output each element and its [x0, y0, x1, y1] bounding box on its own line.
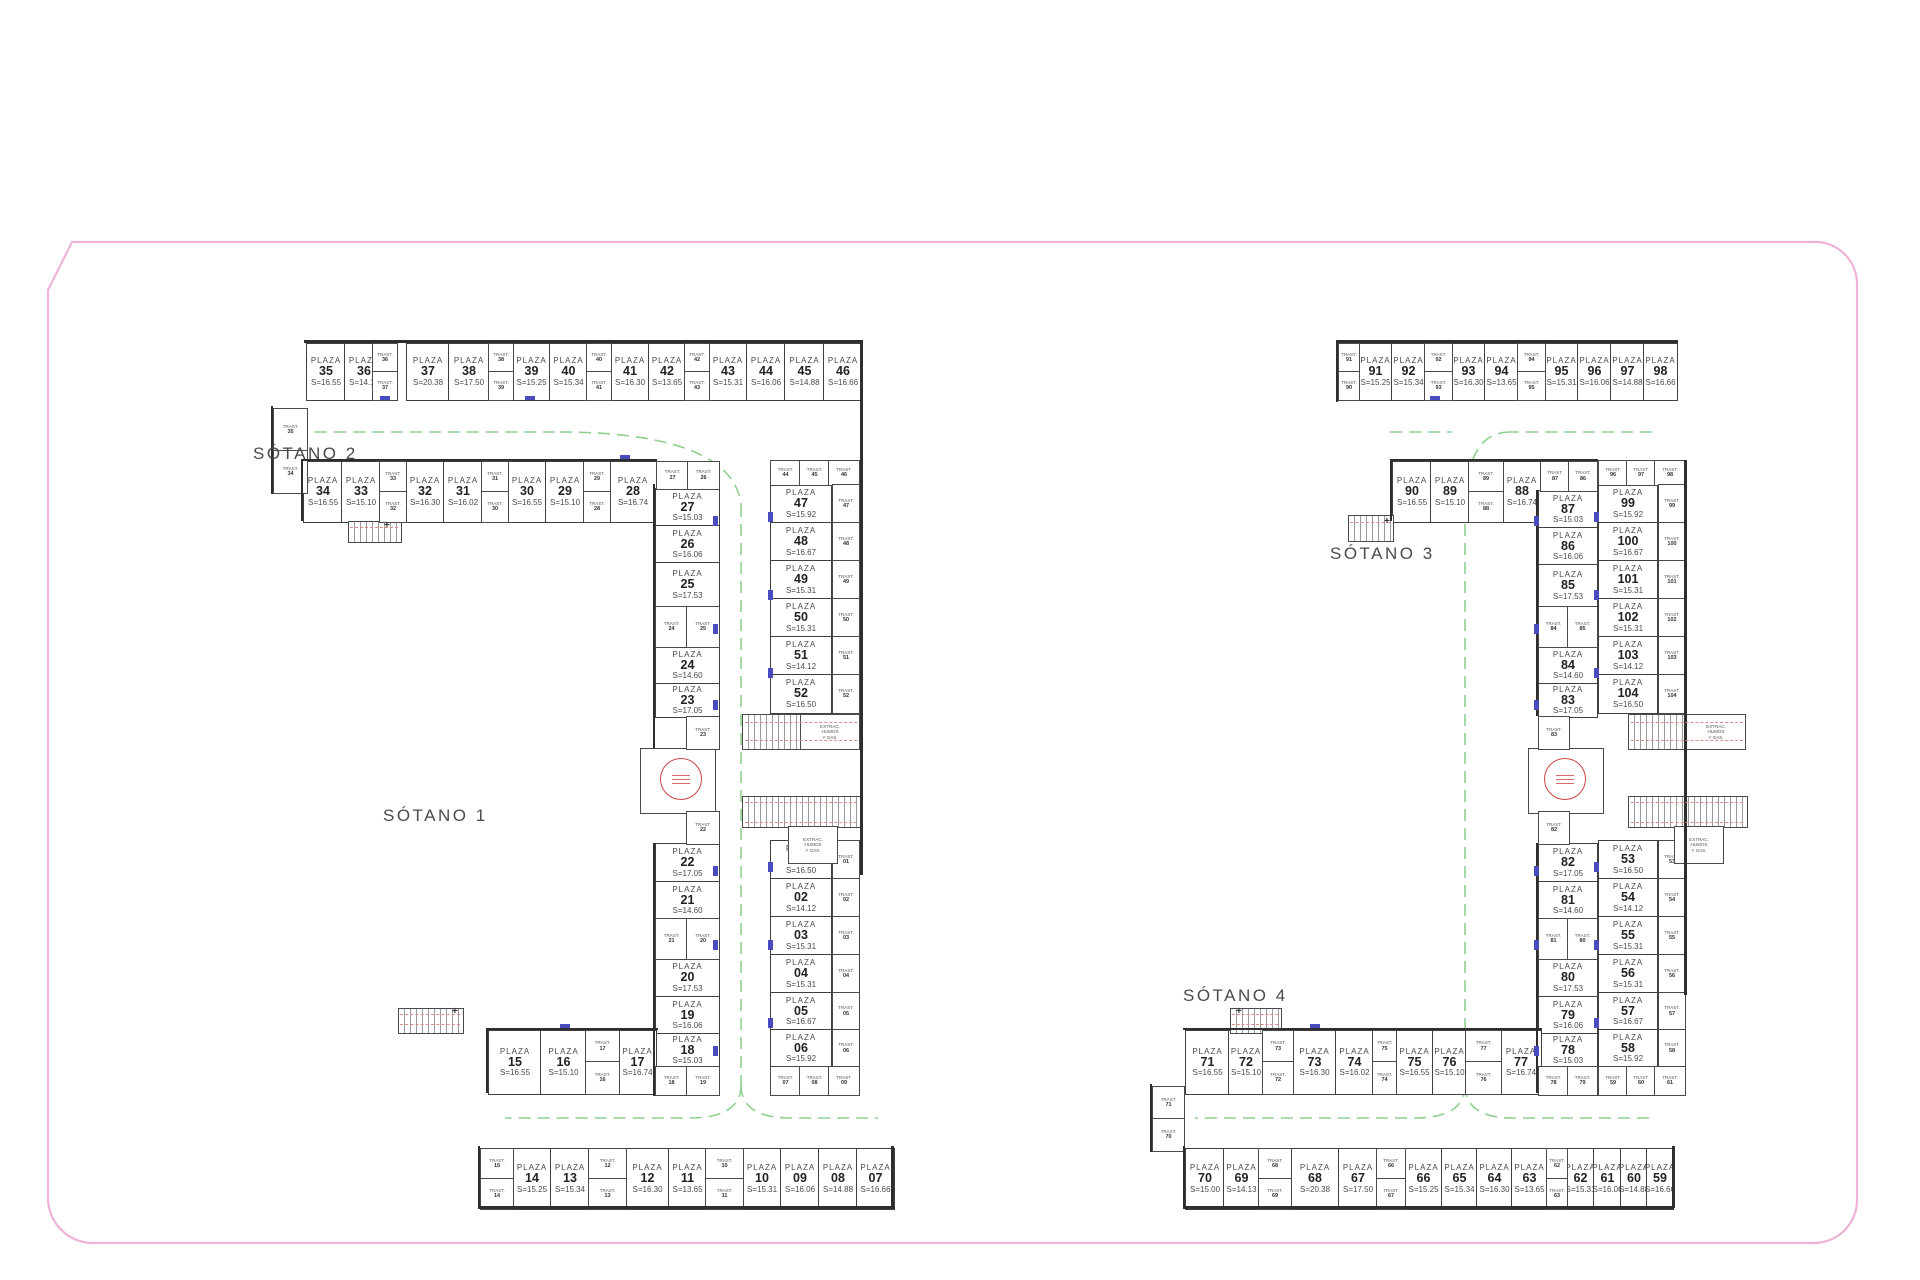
- plaza-area: S=16.55: [500, 1069, 530, 1077]
- trast-number: 82: [1551, 827, 1557, 833]
- door-marker: [768, 590, 773, 600]
- trast-number: 76: [1480, 1077, 1486, 1083]
- plaza-area: S=15.92: [1613, 511, 1643, 519]
- storage-room-03: TRAST.03: [832, 916, 860, 956]
- parking-space-90: PLAZA90S=16.55: [1392, 461, 1432, 523]
- storage-room-98: TRAST.98: [1654, 460, 1686, 486]
- trast-number: 80: [1579, 938, 1585, 944]
- stairs-hatch: [742, 796, 862, 828]
- trast-number: 62: [1554, 1163, 1560, 1169]
- door-marker: [525, 396, 535, 400]
- plaza-number: 96: [1588, 365, 1602, 378]
- plaza-area: S=15.10: [346, 499, 376, 507]
- trast-number: 100: [1667, 541, 1676, 547]
- storage-room-04: TRAST.04: [832, 954, 860, 994]
- door-marker: [1534, 700, 1539, 710]
- plaza-area: S=15.25: [1408, 1186, 1438, 1194]
- plaza-area: S=15.10: [550, 499, 580, 507]
- parking-space-96: PLAZA96S=16.06: [1577, 343, 1612, 401]
- wall-segment: [486, 1028, 658, 1030]
- parking-space-07: PLAZA07S=16.66: [856, 1148, 895, 1210]
- storage-room-96: TRAST.96: [1598, 460, 1628, 486]
- door-marker: [1534, 624, 1539, 634]
- plaza-number: 14: [525, 1172, 539, 1185]
- plaza-area: S=20.38: [413, 379, 443, 387]
- plaza-area: S=16.55: [512, 499, 542, 507]
- storage-room-47: TRAST.47: [832, 484, 860, 524]
- storage-room-46: TRAST.46: [828, 460, 860, 486]
- trast-number: 46: [841, 472, 847, 478]
- door-marker: [768, 862, 773, 872]
- door-marker: [1594, 862, 1599, 872]
- plaza-area: S=16.30: [615, 379, 645, 387]
- parking-space-99: PLAZA99S=15.92: [1598, 484, 1658, 524]
- parking-space-14: PLAZA14S=15.25: [512, 1148, 552, 1210]
- plaza-number: 89: [1443, 485, 1457, 498]
- plaza-number: 93: [1462, 365, 1476, 378]
- parking-space-59: PLAZA59S=16.66: [1646, 1148, 1674, 1210]
- storage-room-72: TRAST.72: [1262, 1061, 1294, 1095]
- wall-segment: [478, 1146, 480, 1208]
- parking-space-91: PLAZA91S=15.25: [1358, 343, 1393, 401]
- plaza-number: 104: [1618, 687, 1639, 700]
- door-marker: [560, 1024, 570, 1028]
- trast-number: 61: [1667, 1080, 1673, 1086]
- door-marker: [713, 1046, 718, 1056]
- door-marker: [1594, 590, 1599, 600]
- plaza-area: S=15.25: [1360, 379, 1390, 387]
- storage-room-26: TRAST.26: [687, 461, 720, 490]
- parking-space-35: PLAZA35S=16.55: [306, 343, 346, 401]
- trast-number: 37: [382, 385, 388, 391]
- plaza-area: S=15.03: [1553, 1057, 1583, 1065]
- storage-room-81: TRAST.81: [1538, 918, 1569, 960]
- plaza-area: S=17.05: [672, 707, 702, 715]
- plaza-area: S=15.31: [1613, 943, 1643, 951]
- plaza-area: S=16.55: [308, 499, 338, 507]
- parking-space-73: PLAZA73S=16.30: [1292, 1030, 1337, 1095]
- plaza-area: S=20.38: [1300, 1186, 1330, 1194]
- smoke-extraction-box: EXTRAC.HUMOSY GAS.: [1674, 826, 1724, 864]
- trast-number: 38: [498, 357, 504, 363]
- plaza-number: 36: [357, 365, 371, 378]
- parking-space-89: PLAZA89S=15.10: [1430, 461, 1470, 523]
- parking-space-40: PLAZA40S=15.34: [549, 343, 588, 401]
- plaza-number: 49: [794, 573, 808, 586]
- door-marker: [1534, 1046, 1539, 1056]
- wall-segment: [304, 340, 863, 343]
- parking-space-62: PLAZA62S=15.31: [1566, 1148, 1595, 1210]
- trast-number: 71: [1165, 1102, 1171, 1108]
- parking-space-61: PLAZA61S=16.06: [1593, 1148, 1622, 1210]
- door-marker: [768, 940, 773, 950]
- plaza-area: S=16.02: [448, 499, 478, 507]
- plaza-area: S=16.02: [1339, 1069, 1369, 1077]
- parking-space-86: PLAZA86S=16.06: [1538, 527, 1598, 566]
- storage-room-84: TRAST.84: [1538, 606, 1569, 648]
- parking-space-32: PLAZA32S=16.30: [405, 461, 445, 523]
- parking-space-41: PLAZA41S=16.30: [610, 343, 650, 401]
- parking-space-27: PLAZA27S=15.03: [655, 488, 720, 527]
- parking-space-71: PLAZA71S=16.55: [1185, 1030, 1230, 1095]
- trast-number: 41: [596, 385, 602, 391]
- plaza-number: 43: [721, 365, 735, 378]
- plaza-area: S=16.06: [751, 379, 781, 387]
- storage-room-89: TRAST.89: [1468, 461, 1504, 493]
- trast-number: 70: [1165, 1134, 1171, 1140]
- plaza-area: S=17.53: [1553, 985, 1583, 993]
- plaza-number: 80: [1561, 971, 1575, 984]
- trast-number: 32: [390, 506, 396, 512]
- storage-room-91: TRAST.91: [1338, 343, 1360, 373]
- stairs-hatch: [348, 521, 402, 543]
- parking-space-63: PLAZA63S=13.65: [1511, 1148, 1548, 1210]
- storage-room-68: TRAST.68: [1258, 1148, 1292, 1180]
- stair-guide-dashes: [745, 740, 857, 741]
- parking-space-45: PLAZA45S=14.88: [784, 343, 825, 401]
- plaza-number: 103: [1618, 649, 1639, 662]
- storage-room-80: TRAST.80: [1567, 918, 1598, 960]
- parking-space-09: PLAZA09S=16.06: [780, 1148, 820, 1210]
- stairs-hatch: [742, 714, 802, 750]
- storage-room-15: TRAST.15: [480, 1148, 514, 1180]
- storage-room-02: TRAST.02: [832, 878, 860, 918]
- parking-space-52: PLAZA52S=16.50: [770, 674, 832, 714]
- plaza-area: S=16.66: [828, 379, 858, 387]
- parking-space-104: PLAZA104S=16.50: [1598, 674, 1658, 714]
- plaza-number: 44: [759, 365, 773, 378]
- storage-room-29: TRAST.29: [583, 461, 611, 493]
- trast-number: 04: [843, 973, 849, 979]
- plaza-area: S=15.92: [1613, 1055, 1643, 1063]
- plaza-area: S=13.65: [672, 1186, 702, 1194]
- floor-label-3: SÓTANO 3: [1330, 544, 1435, 564]
- storage-room-77: TRAST.77: [1465, 1030, 1502, 1063]
- plaza-number: 25: [681, 578, 695, 591]
- plaza-area: S=15.31: [786, 625, 816, 633]
- parking-space-66: PLAZA66S=15.25: [1404, 1148, 1443, 1210]
- plaza-area: S=16.74: [622, 1069, 652, 1077]
- parking-space-60: PLAZA60S=14.88: [1620, 1148, 1648, 1210]
- plaza-number: 42: [660, 365, 674, 378]
- plaza-number: 07: [869, 1172, 883, 1185]
- parking-space-17: PLAZA17S=16.74: [618, 1030, 657, 1095]
- plaza-area: S=14.12: [786, 905, 816, 913]
- parking-space-37: PLAZA37S=20.38: [406, 343, 450, 401]
- parking-space-83: PLAZA83S=17.05: [1538, 683, 1598, 718]
- plaza-number: 09: [793, 1172, 807, 1185]
- trast-number: 17: [599, 1046, 605, 1052]
- stair-guide-dashes: [400, 1014, 460, 1015]
- storage-room-90: TRAST.90: [1338, 371, 1360, 401]
- parking-space-75: PLAZA75S=16.55: [1395, 1030, 1434, 1095]
- trast-number: 87: [1552, 476, 1558, 482]
- trast-number: 95: [1528, 385, 1534, 391]
- parking-space-53: PLAZA53S=16.50: [1598, 840, 1658, 880]
- trast-number: 91: [1346, 357, 1352, 363]
- storage-room-40: TRAST.40: [586, 343, 612, 373]
- parking-space-82: PLAZA82S=17.05: [1538, 843, 1598, 883]
- storage-room-59: TRAST.59: [1598, 1066, 1628, 1096]
- floor-label-2: SÓTANO 1: [383, 806, 488, 826]
- storage-room-24: TRAST.24: [655, 606, 688, 648]
- trast-number: 35: [287, 429, 293, 435]
- door-marker: [380, 396, 390, 400]
- trast-number: 93: [1435, 385, 1441, 391]
- plaza-number: 69: [1235, 1172, 1249, 1185]
- trast-number: 20: [700, 938, 706, 944]
- plaza-area: S=15.31: [713, 379, 743, 387]
- parking-space-54: PLAZA54S=14.12: [1598, 878, 1658, 918]
- trast-number: 58: [1669, 1048, 1675, 1054]
- plaza-area: S=15.31: [786, 981, 816, 989]
- plaza-area: S=15.31: [1613, 981, 1643, 989]
- plaza-number: 55: [1621, 929, 1635, 942]
- plaza-area: S=16.55: [1399, 1069, 1429, 1077]
- plaza-area: S=15.34: [1444, 1186, 1474, 1194]
- trast-number: 84: [1550, 626, 1556, 632]
- trast-number: 89: [1483, 476, 1489, 482]
- stairs-plus-mark: +: [384, 520, 390, 531]
- plaza-area: S=16.74: [1506, 1069, 1536, 1077]
- trast-number: 14: [494, 1193, 500, 1199]
- storage-room-43: TRAST.43: [684, 371, 710, 401]
- plaza-area: S=16.50: [786, 701, 816, 709]
- storage-room-21: TRAST.21: [655, 918, 688, 960]
- trast-number: 47: [843, 503, 849, 509]
- storage-room-50: TRAST.50: [832, 598, 860, 638]
- extraction-line-2: Y GAS.: [805, 848, 820, 853]
- door-marker: [1534, 516, 1539, 526]
- parking-space-48: PLAZA48S=16.67: [770, 522, 832, 562]
- trast-number: 27: [669, 475, 675, 481]
- trast-number: 23: [700, 732, 706, 738]
- storage-room-71: TRAST.71: [1152, 1086, 1185, 1120]
- storage-room-99: TRAST.99: [1658, 484, 1686, 524]
- plaza-number: 47: [794, 497, 808, 510]
- parking-space-23: PLAZA23S=17.05: [655, 683, 720, 718]
- plaza-area: S=15.03: [1553, 516, 1583, 524]
- wall-segment: [891, 1146, 894, 1208]
- wall-segment: [478, 1206, 895, 1209]
- plaza-area: S=16.55: [1192, 1069, 1222, 1077]
- plaza-number: 22: [681, 856, 695, 869]
- plaza-number: 38: [462, 365, 476, 378]
- plaza-area: S=15.31: [786, 587, 816, 595]
- plaza-area: S=14.13: [1226, 1186, 1256, 1194]
- storage-room-42: TRAST.42: [684, 343, 710, 373]
- plaza-area: S=14.88: [823, 1186, 853, 1194]
- plaza-area: S=16.30: [410, 499, 440, 507]
- trast-number: 92: [1435, 357, 1441, 363]
- parking-space-80: PLAZA80S=17.53: [1538, 958, 1598, 998]
- plaza-number: 101: [1618, 573, 1639, 586]
- plaza-number: 56: [1621, 967, 1635, 980]
- parking-space-103: PLAZA103S=14.12: [1598, 636, 1658, 676]
- trast-number: 03: [843, 935, 849, 941]
- trast-number: 11: [722, 1193, 728, 1199]
- trast-number: 33: [390, 476, 396, 482]
- storage-room-92: TRAST.92: [1424, 343, 1453, 373]
- plaza-number: 68: [1308, 1172, 1322, 1185]
- storage-room-09: TRAST.09: [828, 1066, 860, 1096]
- wall-segment: [1390, 459, 1598, 461]
- plaza-area: S=14.12: [1613, 663, 1643, 671]
- trast-number: 101: [1667, 579, 1676, 585]
- parking-space-04: PLAZA04S=15.31: [770, 954, 832, 994]
- plaza-area: S=15.34: [555, 1186, 585, 1194]
- plaza-number: 85: [1561, 579, 1575, 592]
- trast-number: 86: [1580, 476, 1586, 482]
- trast-number: 69: [1272, 1193, 1278, 1199]
- stair-guide-dashes: [745, 722, 857, 723]
- trast-number: 73: [1275, 1046, 1281, 1052]
- plaza-number: 37: [421, 365, 435, 378]
- parking-space-22: PLAZA22S=17.05: [655, 843, 720, 883]
- wall-segment: [1684, 460, 1687, 995]
- trast-number: 24: [668, 626, 674, 632]
- door-marker: [1310, 1024, 1320, 1028]
- plaza-number: 54: [1621, 891, 1635, 904]
- trast-number: 13: [604, 1193, 610, 1199]
- parking-space-67: PLAZA67S=17.50: [1338, 1148, 1378, 1210]
- parking-space-16: PLAZA16S=15.10: [540, 1030, 587, 1095]
- plaza-area: S=15.31: [1613, 587, 1643, 595]
- door-marker: [1430, 396, 1440, 400]
- stair-guide-dashes: [1232, 1024, 1278, 1025]
- parking-space-49: PLAZA49S=15.31: [770, 560, 832, 600]
- parking-space-02: PLAZA02S=14.12: [770, 878, 832, 918]
- plaza-number: 31: [456, 485, 470, 498]
- plaza-number: 90: [1405, 485, 1419, 498]
- trast-number: 103: [1667, 655, 1676, 661]
- plaza-area: S=14.88: [789, 379, 819, 387]
- storage-room-97: TRAST.97: [1626, 460, 1656, 486]
- parking-space-06: PLAZA06S=15.92: [770, 1029, 832, 1068]
- plaza-area: S=16.74: [618, 499, 648, 507]
- storage-room-56: TRAST.56: [1658, 954, 1686, 994]
- parking-space-19: PLAZA19S=16.06: [655, 996, 720, 1035]
- plaza-number: 34: [316, 485, 330, 498]
- parking-space-51: PLAZA51S=14.12: [770, 636, 832, 676]
- plaza-number: 41: [623, 365, 637, 378]
- plaza-area: S=14.88: [1612, 379, 1642, 387]
- parking-space-30: PLAZA30S=16.55: [507, 461, 547, 523]
- parking-space-34: PLAZA34S=16.55: [303, 461, 343, 523]
- plaza-area: S=15.31: [786, 943, 816, 951]
- trast-number: 28: [594, 506, 600, 512]
- trast-number: 88: [1483, 506, 1489, 512]
- trast-number: 30: [492, 506, 498, 512]
- parking-space-56: PLAZA56S=15.31: [1598, 954, 1658, 994]
- wall-segment: [1672, 1146, 1675, 1208]
- plaza-area: S=16.50: [1613, 867, 1643, 875]
- storage-room-16: TRAST.16: [585, 1061, 620, 1095]
- wall-segment: [1336, 340, 1678, 343]
- plaza-number: 102: [1618, 611, 1639, 624]
- trast-number: 81: [1550, 938, 1556, 944]
- plaza-number: 50: [794, 611, 808, 624]
- storage-room-70: TRAST.70: [1152, 1118, 1185, 1152]
- wall-segment: [653, 843, 655, 1096]
- trast-number: 06: [843, 1048, 849, 1054]
- plaza-number: 11: [681, 1172, 694, 1185]
- trast-number: 67: [1388, 1193, 1394, 1199]
- floorplan-canvas: PLAZA35S=16.55PLAZA36S=14.13PLAZA37S=20.…: [0, 0, 1920, 1280]
- wall-segment: [486, 1028, 488, 1093]
- plaza-area: S=13.65: [1514, 1186, 1544, 1194]
- storage-room-44: TRAST.44: [770, 460, 801, 486]
- parking-space-29: PLAZA29S=15.10: [545, 461, 585, 523]
- plaza-area: S=15.25: [517, 1186, 547, 1194]
- parking-space-05: PLAZA05S=16.67: [770, 992, 832, 1031]
- plaza-number: 02: [794, 891, 808, 904]
- storage-room-86: TRAST.86: [1568, 461, 1598, 492]
- storage-room-12: TRAST.12: [588, 1148, 627, 1180]
- storage-room-18: TRAST.18: [655, 1066, 688, 1096]
- plaza-area: S=16.55: [1397, 499, 1427, 507]
- plaza-number: 70: [1198, 1172, 1212, 1185]
- door-marker: [713, 866, 718, 876]
- plaza-number: 62: [1574, 1172, 1588, 1185]
- storage-room-17: TRAST.17: [585, 1030, 620, 1063]
- plaza-area: S=16.50: [786, 867, 816, 875]
- trast-number: 68: [1272, 1163, 1278, 1169]
- trast-number: 94: [1528, 357, 1534, 363]
- plaza-area: S=15.34: [1393, 379, 1423, 387]
- elevator-circle-text-line: [1556, 779, 1574, 780]
- plaza-area: S=16.74: [1507, 499, 1537, 507]
- plaza-number: 94: [1495, 365, 1509, 378]
- parking-space-95: PLAZA95S=15.31: [1544, 343, 1579, 401]
- storage-room-54: TRAST.54: [1658, 878, 1686, 918]
- parking-space-47: PLAZA47S=15.92: [770, 484, 832, 524]
- trast-number: 77: [1480, 1046, 1486, 1052]
- storage-room-33: TRAST.33: [379, 461, 407, 493]
- parking-space-92: PLAZA92S=15.34: [1391, 343, 1426, 401]
- plaza-area: S=15.10: [1231, 1069, 1261, 1077]
- parking-space-28: PLAZA28S=16.74: [609, 461, 657, 523]
- trast-number: 29: [594, 476, 600, 482]
- plaza-number: 59: [1653, 1172, 1667, 1185]
- plaza-area: S=16.50: [1613, 701, 1643, 709]
- storage-room-08: TRAST.08: [799, 1066, 830, 1096]
- storage-room-06: TRAST.06: [832, 1029, 860, 1068]
- door-marker: [713, 516, 718, 526]
- door-marker: [1594, 940, 1599, 950]
- plaza-number: 28: [626, 485, 640, 498]
- trast-number: 63: [1554, 1193, 1560, 1199]
- plaza-area: S=15.92: [786, 511, 816, 519]
- stair-guide-dashes: [350, 527, 398, 528]
- stair-guide-dashes: [1631, 740, 1743, 741]
- parking-space-57: PLAZA57S=16.67: [1598, 992, 1658, 1031]
- plaza-number: 99: [1621, 497, 1635, 510]
- plaza-area: S=15.31: [747, 1186, 777, 1194]
- stairs-hatch: [1628, 714, 1688, 750]
- parking-space-64: PLAZA64S=16.30: [1476, 1148, 1513, 1210]
- smoke-extraction-box: EXTRAC.HUMOSY GAS.: [1686, 714, 1746, 750]
- plaza-area: S=15.31: [1546, 379, 1576, 387]
- trast-number: 42: [694, 357, 700, 363]
- parking-space-87: PLAZA87S=15.03: [1538, 490, 1598, 529]
- door-marker: [713, 700, 718, 710]
- storage-room-28: TRAST.28: [583, 491, 611, 523]
- plaza-number: 30: [520, 485, 534, 498]
- trast-number: 10: [721, 1163, 727, 1169]
- door-marker: [1594, 1018, 1599, 1028]
- trast-number: 55: [1669, 935, 1675, 941]
